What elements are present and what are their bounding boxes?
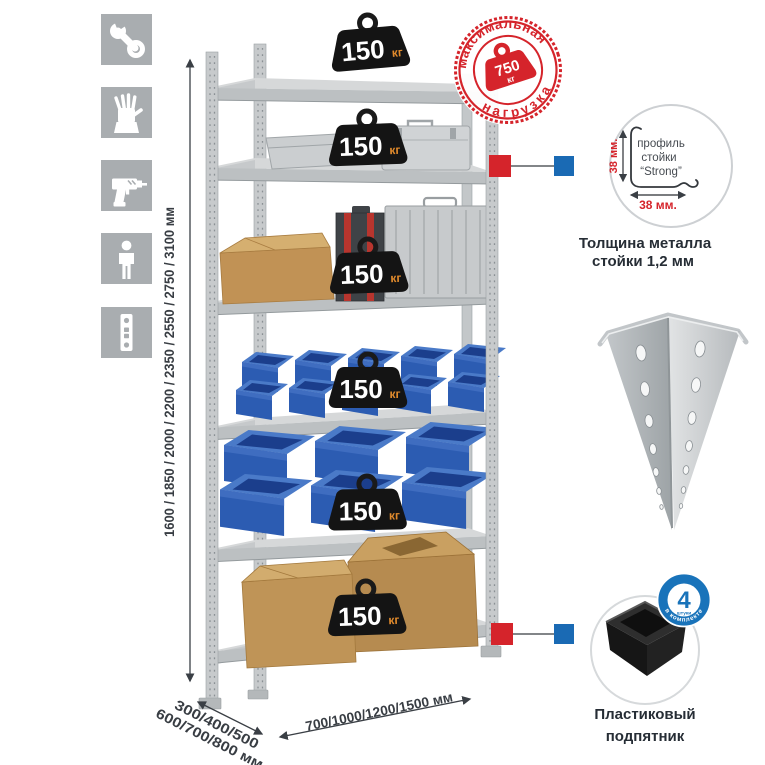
gloves-icon: [101, 87, 152, 138]
profile-label-3: “Strong”: [640, 166, 682, 178]
profile-horizontal-dim: 38 мм.: [639, 198, 677, 212]
quantity-badge: 4 штуки в комплекте: [658, 574, 711, 627]
height-dimension-label: 1600 / 1850 / 2000 / 2200 / 2350 / 2550 …: [161, 207, 177, 537]
foot-caption-2: подпятник: [606, 728, 685, 745]
drill-icon: [101, 160, 152, 211]
callout-marker-blue-bottom: [554, 624, 574, 644]
profile-label-1: профиль: [637, 138, 685, 150]
badge-word: штуки: [677, 612, 692, 617]
shelving-rack-infographic: 150 кг: [0, 0, 765, 765]
person-icon: [101, 233, 152, 284]
profile-caption-1: Толщина металла: [579, 235, 712, 252]
callout-marker-red-bottom: [491, 623, 513, 645]
cardboard-box-small: [220, 233, 334, 304]
wrench-icon: [101, 14, 152, 65]
profile-detail-circle: 38 мм. 38 мм. профиль стойки “Strong”: [608, 105, 732, 227]
profile-caption-2: стойки 1,2 мм: [592, 253, 694, 270]
callout-marker-red-top: [489, 155, 511, 177]
profile-label-2: стойки: [641, 152, 676, 164]
badge-number: 4: [677, 587, 691, 614]
foot-caption-1: Пластиковый: [594, 706, 695, 723]
profile-vertical-dim: 38 мм.: [608, 139, 620, 174]
callout-marker-blue-top: [554, 156, 574, 176]
rack-profile-icon: [101, 307, 152, 358]
